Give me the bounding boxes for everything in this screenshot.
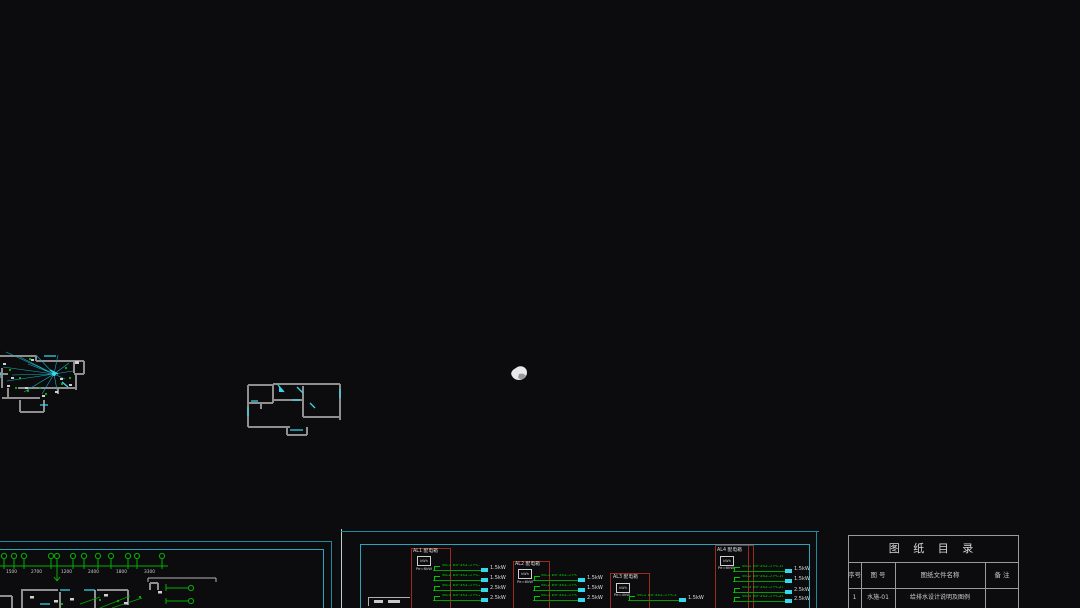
table-col-line-1 (861, 562, 862, 608)
wiring-lines (80, 596, 142, 608)
circuit-load: 2.5kW (587, 596, 603, 601)
plan-walls (0, 583, 158, 608)
circuit-line (433, 600, 482, 601)
circuit-load: 2.5kW (794, 588, 810, 593)
box3-subtitle: Pe=4kW (614, 593, 630, 597)
circuit-load: 1.5kW (587, 586, 603, 591)
middle-sheet-border-outer-top (341, 531, 819, 532)
breaker-symbol (534, 586, 540, 591)
terminal-block (481, 598, 488, 602)
circuit-load: 1.5kW (490, 576, 506, 581)
terminal-block (481, 568, 488, 572)
circuit-line (433, 590, 482, 591)
catalog-title: 图 纸 目 录 (848, 543, 1019, 554)
breaker-symbol (534, 596, 540, 601)
wire-spec: WL1 BV-3x2.5 PC16 (442, 564, 480, 568)
circuit-load: 1.5kW (794, 567, 810, 572)
terminal-block (578, 578, 585, 582)
circuit-load: 1.5kW (794, 577, 810, 582)
table-line-under-header (848, 588, 1019, 589)
breaker-symbol (734, 567, 740, 572)
breaker-symbol (734, 577, 740, 582)
sheet-divider-line (341, 529, 342, 608)
catalog-header-note: 备 注 (985, 572, 1019, 579)
circuit-line (433, 570, 482, 571)
pan-cursor-icon (509, 365, 531, 389)
table-border-top (848, 535, 1019, 536)
circuit-load: 1.5kW (490, 566, 506, 571)
wire-spec: WL1 BV-3x2.5 PC16 (742, 565, 783, 569)
fixture-symbols (9, 358, 71, 395)
circuit-load: 2.5kW (490, 586, 506, 591)
circuit-line (733, 571, 785, 572)
terminal-block (578, 588, 585, 592)
note-text-blob (374, 600, 383, 603)
circuit-load: 2.5kW (490, 596, 506, 601)
breaker-symbol (734, 588, 740, 593)
catalog-row-name: 给排水设计说明及图例 (895, 595, 985, 601)
box4-title: AL4 配电箱 (717, 549, 742, 554)
circuit-line (628, 600, 679, 601)
box2-title: AL2 配电箱 (515, 563, 540, 568)
wire-spec: WL3 BV-3x2.5 PC20 (742, 586, 783, 590)
circuit-load: 1.5kW (688, 596, 704, 601)
table-line-under-title (848, 562, 1019, 563)
wire-spec: WL4 BV-3x2.5 PC20 (742, 595, 783, 599)
breaker-symbol (534, 576, 540, 581)
table-col-line-3 (985, 562, 986, 608)
terminal-block (481, 578, 488, 582)
box4-subtitle: Pe=6kW (718, 566, 734, 570)
wire-spec: WL2 BV-3x2.5 PC16 (541, 584, 577, 588)
plan-walls (248, 384, 340, 435)
axis-dimensions: 1500 2700 1200 2400 1800 3300 (6, 569, 155, 575)
catalog-header-no: 序号 (848, 572, 861, 579)
wire-spec: WL3 BV-3x2.5 PC20 (541, 594, 577, 598)
box2-kwh-meter: kWh (518, 569, 532, 579)
wiring-hub (52, 372, 56, 376)
svg-text:1800: 1800 (116, 569, 127, 575)
table-col-line-2 (895, 562, 896, 608)
left-sheet-border-outer-top (0, 541, 332, 542)
svg-text:1500: 1500 (6, 569, 17, 575)
cad-canvas[interactable]: 1500 2700 1200 2400 1800 3300 (0, 0, 1080, 608)
apartment-floor-plan[interactable] (237, 376, 347, 438)
terminal-block (578, 598, 585, 602)
wire-spec: WL2 BV-3x2.5 PC16 (742, 575, 783, 579)
breaker-symbol (734, 597, 740, 602)
breaker-symbol (434, 566, 440, 571)
circuit-load: 1.5kW (587, 576, 603, 581)
note-text-blob (388, 600, 400, 603)
box1-subtitle: Pe=6kW (416, 567, 432, 571)
catalog-row-code: 水施-01 (861, 595, 895, 601)
micro-labels (3, 359, 79, 397)
svg-text:3300: 3300 (144, 569, 155, 575)
circuit-line (433, 580, 482, 581)
circuit-line (733, 592, 785, 593)
breaker-symbol (434, 596, 440, 601)
breaker-symbol (629, 596, 635, 601)
terminal-block (785, 579, 792, 583)
middle-sheet-border-outer-right (816, 531, 817, 608)
catalog-header-code: 图 号 (861, 572, 895, 579)
catalog-header-name: 图纸文件名称 (895, 572, 985, 579)
box2-subtitle: Pe=6kW (517, 580, 533, 584)
dimension-bracket (148, 578, 216, 582)
wire-spec: WL4 BV-3x2.5 PC20 (442, 594, 480, 598)
circuit-load: 2.5kW (794, 597, 810, 602)
box1-title: AL1 配电箱 (413, 550, 438, 555)
axis-grid (0, 553, 194, 604)
terminal-block (785, 590, 792, 594)
box1-kwh-meter: kWh (417, 556, 431, 566)
svg-text:2700: 2700 (31, 569, 42, 575)
box3-title: AL3 配电箱 (613, 576, 638, 581)
svg-text:2400: 2400 (88, 569, 99, 575)
wire-spec: WL2 BV-3x2.5 PC16 (442, 574, 480, 578)
wire-spec: WL1 BV-3x2.5 PC16 (637, 594, 677, 598)
terminal-block (679, 598, 686, 602)
circuit-line (733, 601, 785, 602)
breaker-symbol (434, 586, 440, 591)
svg-text:1200: 1200 (61, 569, 72, 575)
note-tick (368, 597, 369, 606)
breaker-symbol (434, 576, 440, 581)
wire-spec: WL3 BV-3x2.5 PC20 (442, 584, 480, 588)
terminal-block (481, 588, 488, 592)
wire-spec: WL1 BV-3x2.5 PC16 (541, 574, 577, 578)
terminal-block (785, 569, 792, 573)
note-line (368, 597, 410, 598)
catalog-row-no: 1 (848, 595, 861, 601)
terminal-block (785, 599, 792, 603)
left-sheet-plan: 1500 2700 1200 2400 1800 3300 (0, 549, 335, 608)
wiring-floor-plan[interactable] (0, 348, 95, 438)
circuit-line (733, 581, 785, 582)
